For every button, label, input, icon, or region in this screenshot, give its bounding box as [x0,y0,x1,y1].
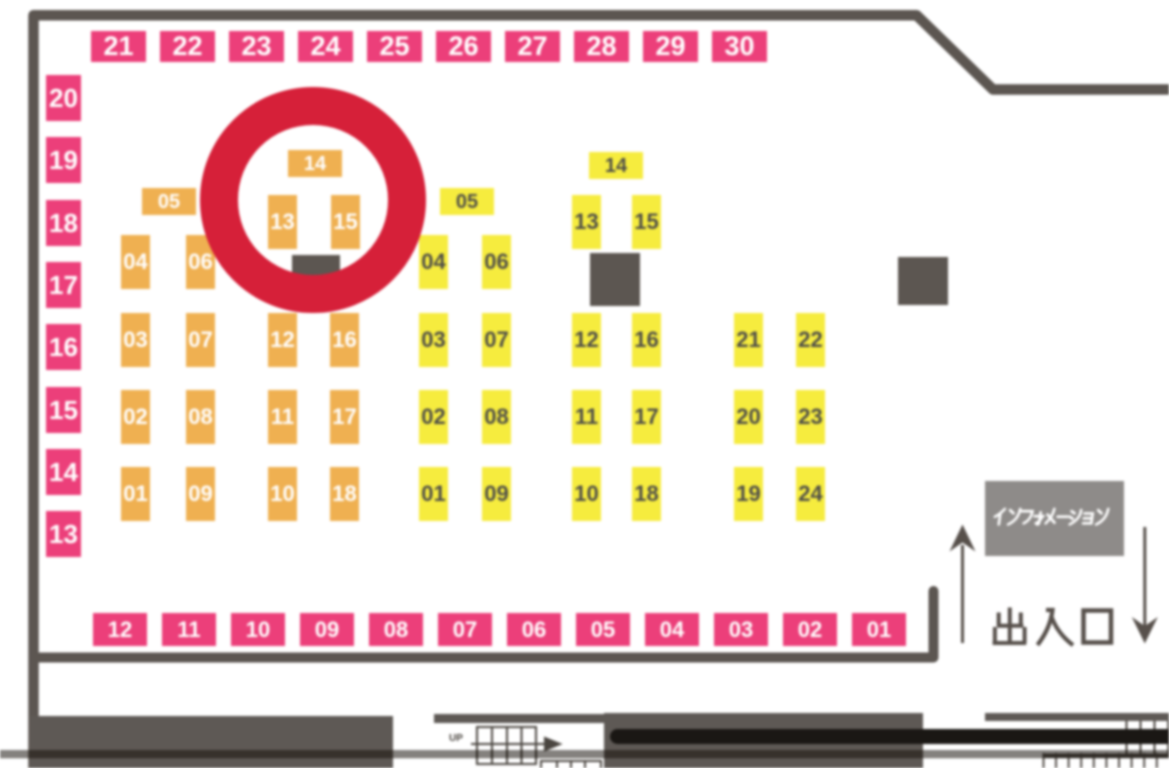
svg-text:UP: UP [449,733,463,744]
